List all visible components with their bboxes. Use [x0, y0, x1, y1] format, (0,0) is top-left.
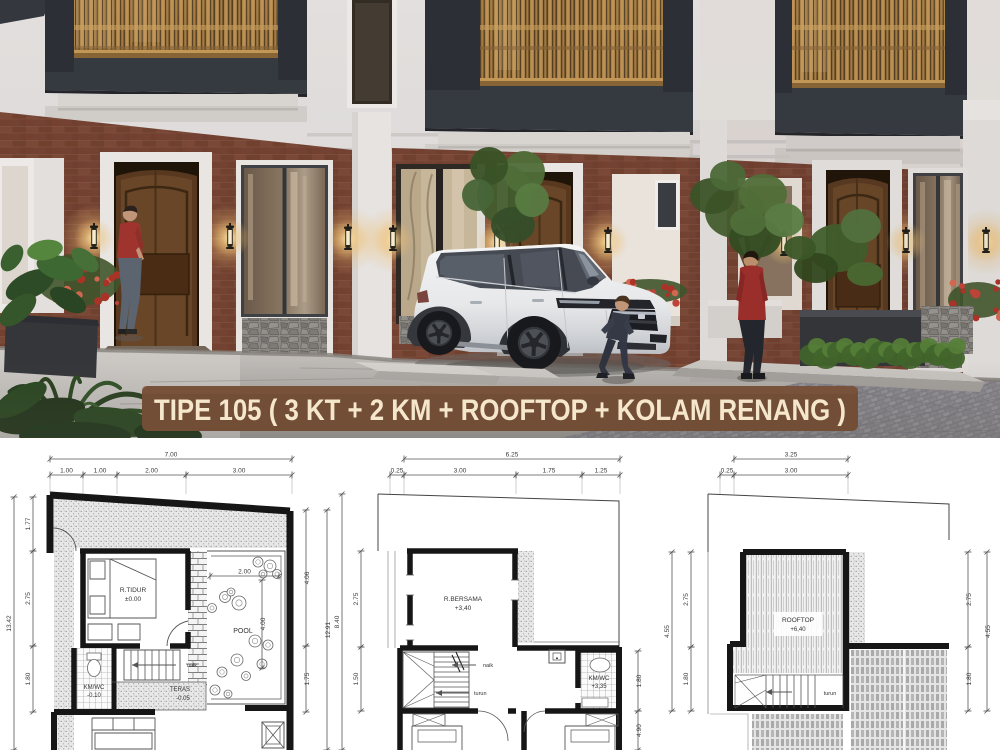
- svg-text:2.75: 2.75: [966, 593, 973, 606]
- svg-text:1.75: 1.75: [543, 468, 556, 475]
- svg-text:naik: naik: [483, 663, 493, 669]
- svg-text:1.50: 1.50: [353, 672, 360, 685]
- svg-text:1.80: 1.80: [683, 672, 690, 685]
- svg-text:R.BERSAMA: R.BERSAMA: [444, 596, 483, 603]
- svg-text:7.00: 7.00: [165, 452, 178, 459]
- svg-text:TERAS: TERAS: [170, 687, 190, 693]
- svg-text:ROOFTOP: ROOFTOP: [782, 617, 814, 624]
- svg-text:13.42: 13.42: [6, 615, 13, 632]
- svg-text:4.06: 4.06: [304, 571, 311, 584]
- svg-text:TIPE 105 ( 3 KT + 2 KM + ROOFT: TIPE 105 ( 3 KT + 2 KM + ROOFTOP + KOLAM…: [154, 394, 846, 427]
- svg-text:±0.00: ±0.00: [125, 596, 142, 603]
- svg-text:KM/WC: KM/WC: [84, 685, 105, 691]
- svg-text:4.55: 4.55: [985, 625, 992, 638]
- svg-text:4.55: 4.55: [664, 625, 671, 638]
- svg-text:1.80: 1.80: [966, 672, 973, 685]
- svg-text:8.40: 8.40: [334, 615, 341, 628]
- svg-text:2.75: 2.75: [683, 593, 690, 606]
- svg-text:1.77: 1.77: [25, 517, 32, 530]
- svg-text:+6,40: +6,40: [790, 627, 806, 633]
- svg-text:turun: turun: [474, 691, 487, 697]
- svg-text:turun: turun: [824, 691, 837, 697]
- svg-text:0.25: 0.25: [721, 468, 734, 475]
- svg-text:1.80: 1.80: [636, 674, 643, 687]
- svg-text:2.00: 2.00: [145, 468, 158, 475]
- svg-text:3.00: 3.00: [454, 468, 467, 475]
- svg-text:2.00: 2.00: [238, 569, 251, 576]
- svg-text:2.75: 2.75: [353, 592, 360, 605]
- svg-text:12.91: 12.91: [325, 621, 332, 638]
- svg-text:KM/WC: KM/WC: [589, 676, 610, 682]
- svg-text:3.25: 3.25: [785, 452, 798, 459]
- svg-text:1.00: 1.00: [60, 468, 73, 475]
- svg-text:1.25: 1.25: [595, 468, 608, 475]
- svg-text:3.00: 3.00: [785, 468, 798, 475]
- svg-text:4.90: 4.90: [636, 724, 643, 737]
- svg-text:0.25: 0.25: [391, 468, 404, 475]
- svg-text:▲: ▲: [555, 655, 559, 660]
- svg-text:3.00: 3.00: [233, 468, 246, 475]
- svg-text:+3,35: +3,35: [591, 684, 607, 690]
- svg-text:1.00: 1.00: [94, 468, 107, 475]
- svg-text:1.80: 1.80: [25, 672, 32, 685]
- svg-text:6.25: 6.25: [506, 452, 519, 459]
- svg-text:4.00: 4.00: [260, 617, 267, 630]
- svg-text:-0.10: -0.10: [87, 693, 101, 699]
- svg-text:1.75: 1.75: [304, 672, 311, 685]
- svg-text:2.75: 2.75: [25, 592, 32, 605]
- svg-text:+3,40: +3,40: [455, 605, 472, 612]
- svg-text:POOL: POOL: [233, 628, 253, 635]
- svg-text:R.TIDUR: R.TIDUR: [120, 587, 147, 594]
- svg-text:-0.05: -0.05: [176, 696, 190, 702]
